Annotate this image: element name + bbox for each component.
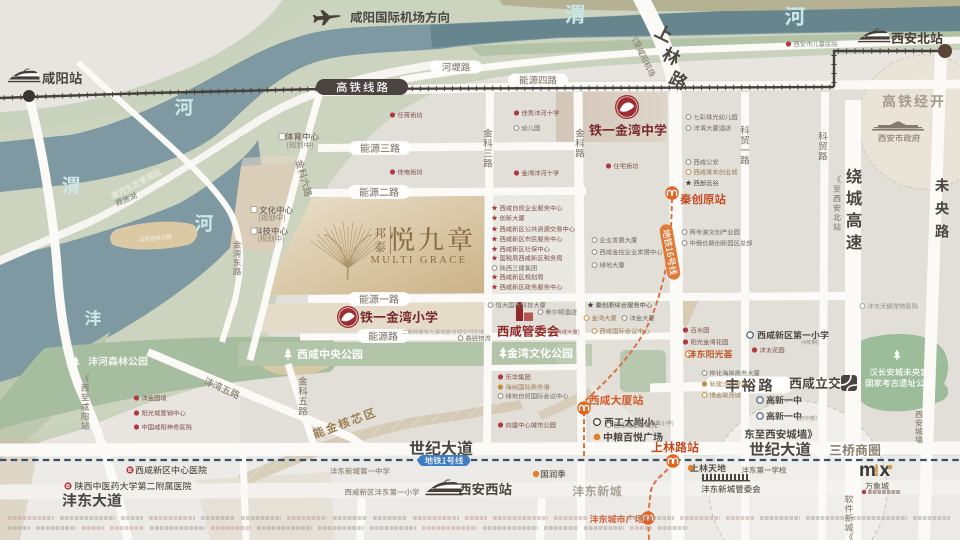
svg-text:B: B: [66, 484, 70, 490]
svg-text:x: x: [880, 460, 891, 481]
svg-text:B: B: [128, 468, 132, 474]
svg-text:m: m: [859, 460, 876, 481]
svg-text:MULTI GRACE: MULTI GRACE: [371, 255, 468, 266]
